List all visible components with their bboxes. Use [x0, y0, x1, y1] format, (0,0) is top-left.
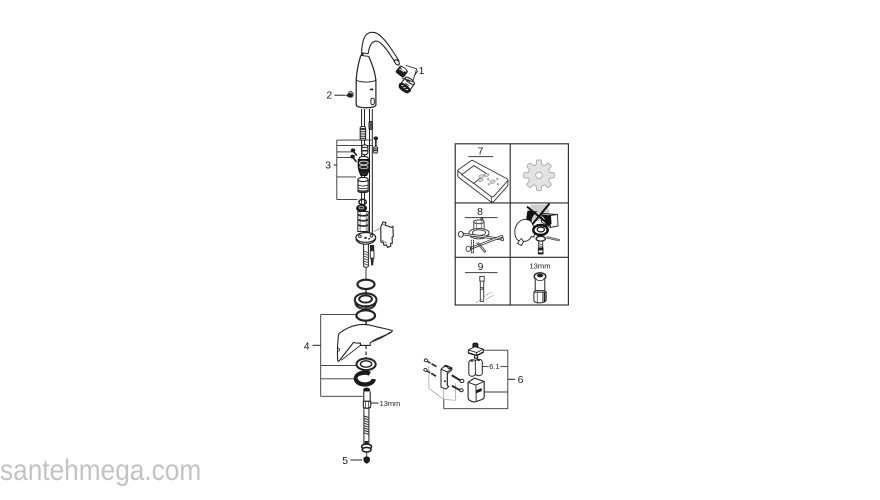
svg-text:9: 9 — [478, 262, 484, 273]
svg-text:2: 2 — [326, 91, 332, 102]
svg-text:6: 6 — [518, 375, 524, 386]
svg-text:5: 5 — [342, 456, 348, 467]
svg-text:1: 1 — [419, 66, 425, 77]
svg-text:6.1: 6.1 — [489, 362, 499, 371]
svg-text:4: 4 — [304, 341, 310, 352]
svg-text:13mm: 13mm — [529, 262, 550, 271]
svg-text:13mm: 13mm — [380, 399, 401, 408]
svg-text:santehmega.com: santehmega.com — [0, 452, 201, 486]
svg-text:3: 3 — [325, 161, 331, 172]
svg-text:8: 8 — [477, 207, 483, 218]
svg-text:7: 7 — [478, 147, 484, 158]
